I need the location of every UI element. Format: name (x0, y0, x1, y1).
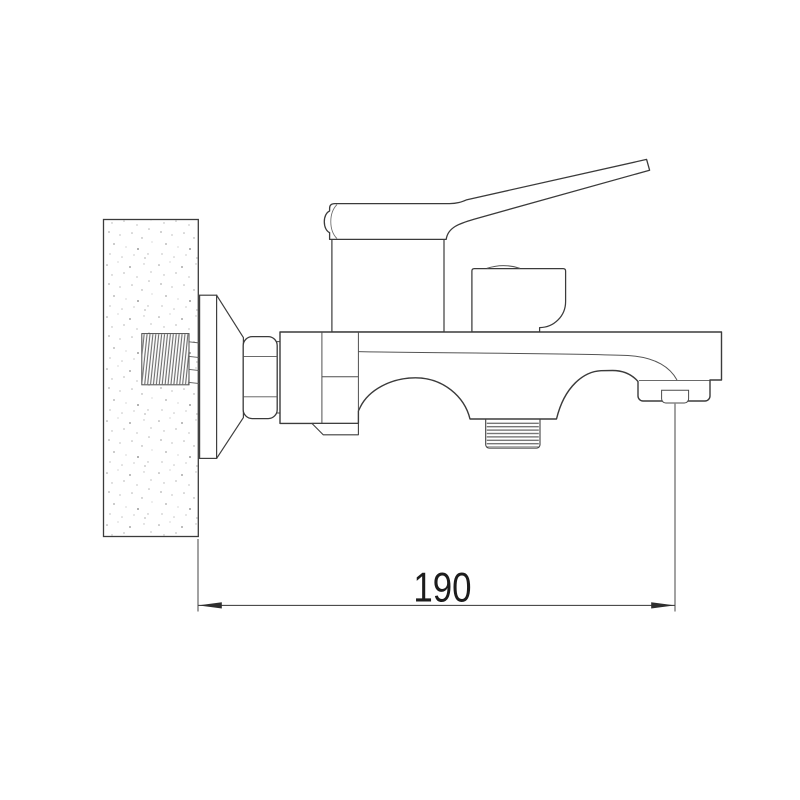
escutcheon-flange (200, 295, 217, 458)
arrowhead-right (651, 602, 675, 608)
technical-drawing-canvas: 190 (0, 0, 800, 800)
diverter-knob (472, 266, 566, 332)
arrowhead-left (198, 602, 222, 608)
faucet-side-view-drawing: 190 (0, 0, 800, 800)
mounting-foot (312, 423, 359, 434)
mixer-body-and-spout (280, 332, 722, 423)
shower-outlet-thread (486, 419, 540, 448)
dimension-line-190: 190 (198, 404, 675, 612)
hex-nut (243, 337, 277, 419)
dimension-value: 190 (413, 565, 471, 612)
mounting-cone (217, 295, 244, 458)
lever-handle (324, 159, 649, 239)
cartridge-column (332, 236, 444, 332)
aerator (662, 390, 689, 403)
